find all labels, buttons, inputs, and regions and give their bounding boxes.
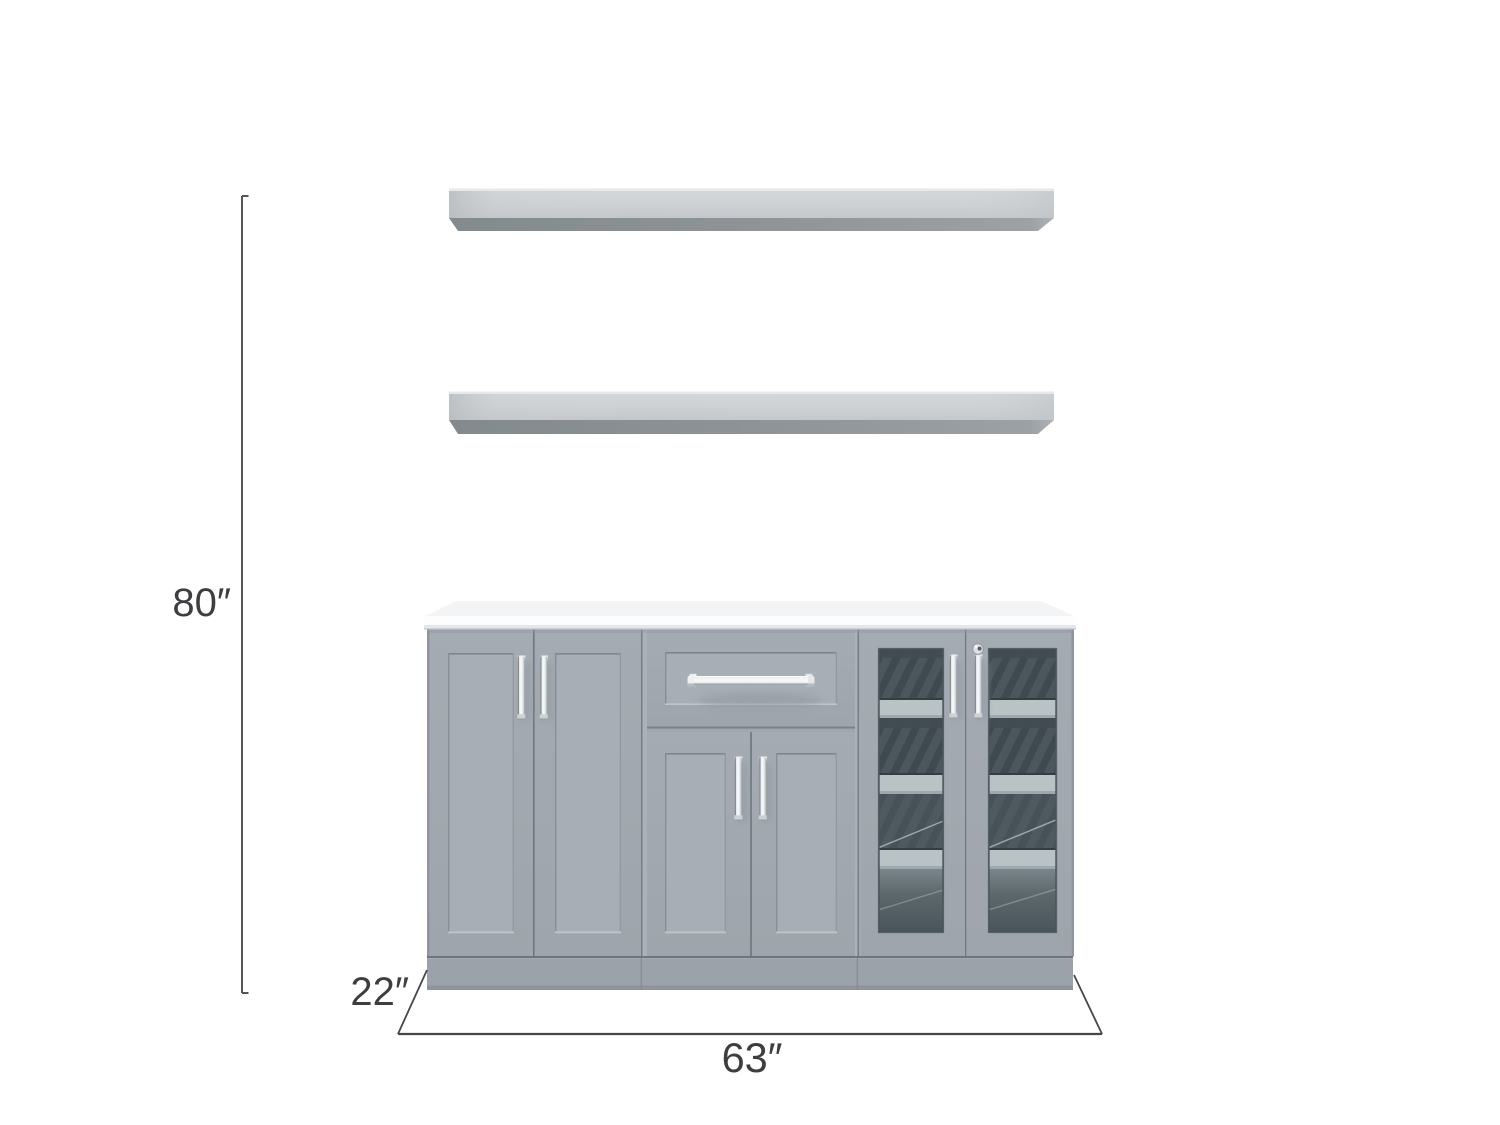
svg-text:22″: 22″: [350, 970, 409, 1014]
svg-text:80″: 80″: [172, 581, 231, 625]
svg-text:63″: 63″: [722, 1034, 783, 1081]
